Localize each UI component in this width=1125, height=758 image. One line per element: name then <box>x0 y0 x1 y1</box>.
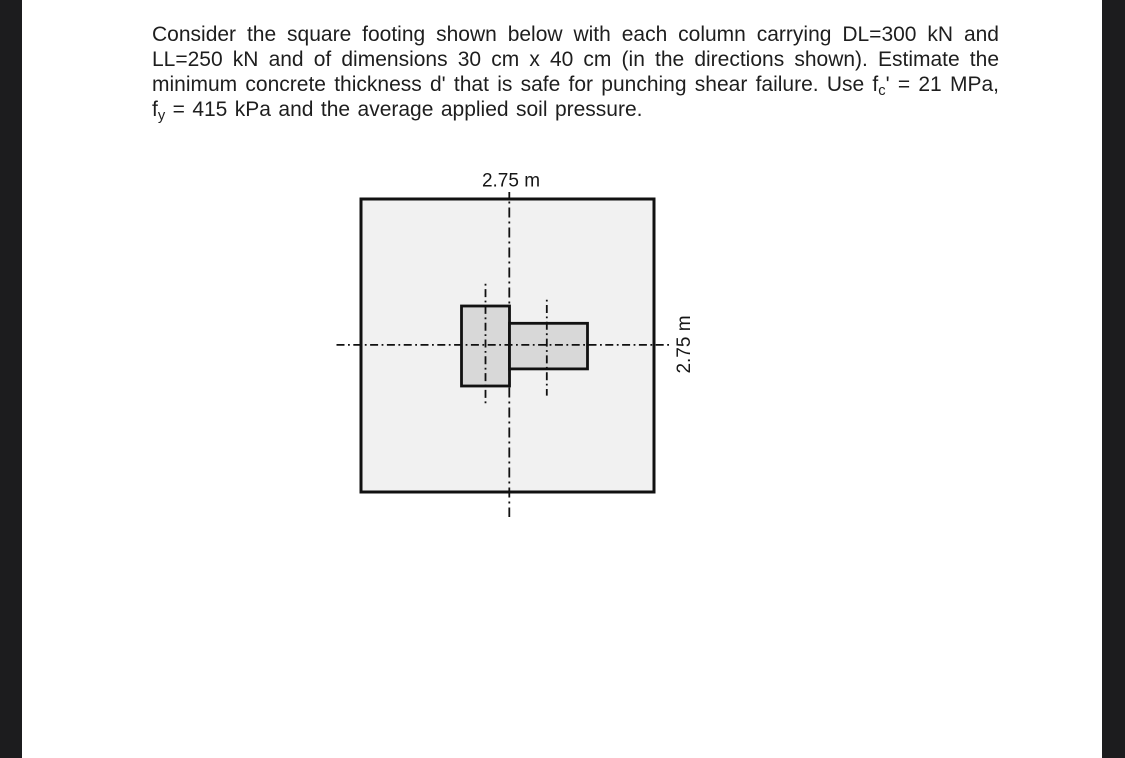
svg-text:2.75 m: 2.75 m <box>674 315 695 373</box>
svg-text:2.75 m: 2.75 m <box>482 171 540 192</box>
